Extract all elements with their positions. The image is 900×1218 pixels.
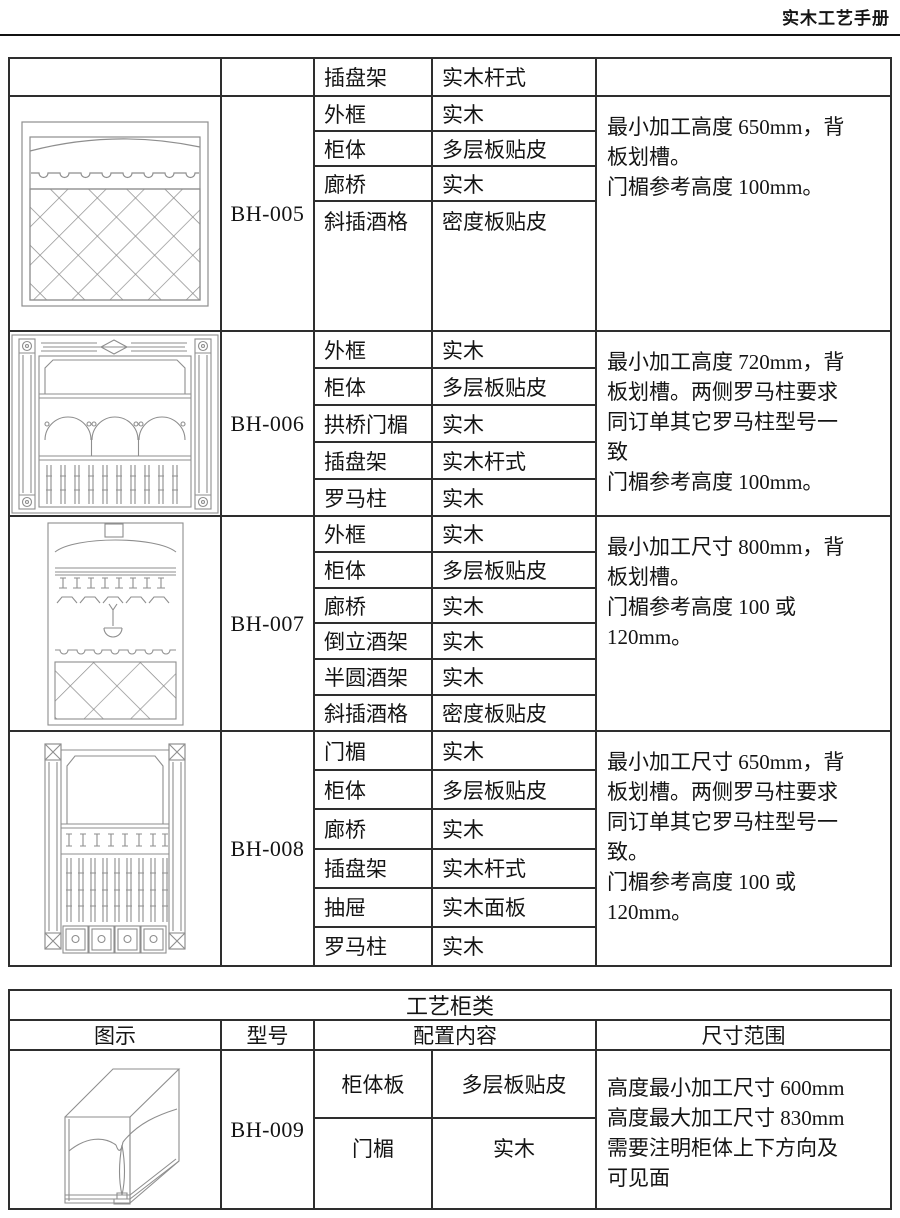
size-note-cell: 最小加工高度 720mm，背 板划槽。两侧罗马柱要求 同订单其它罗马柱型号一 致…	[597, 332, 890, 515]
config-part-cell: 外框	[315, 97, 433, 130]
config-row: 插盘架 实木杆式	[315, 59, 595, 95]
config-row: 拱桥门楣 实木	[315, 406, 595, 443]
model-cell: BH-009	[222, 1051, 315, 1208]
config-row: 抽屉 实木面板	[315, 889, 595, 928]
product-row-bh-006: BH-006 外框 实木 柜体 多层板贴皮 拱桥门楣 实木 插盘架 实木杆式	[10, 332, 890, 517]
config-part-cell: 廊桥	[315, 589, 433, 623]
diagram-cell	[10, 332, 222, 515]
column-header-config: 配置内容	[315, 1021, 597, 1049]
config-material-cell: 实木	[433, 624, 595, 658]
config-material-cell: 多层板贴皮	[433, 1051, 595, 1117]
config-material-cell: 多层板贴皮	[433, 553, 595, 587]
column-header-size-range: 尺寸范围	[597, 1021, 890, 1049]
manual-page: 实木工艺手册 插盘架 实木杆式	[0, 0, 900, 1218]
config-row: 外框 实木	[315, 517, 595, 553]
config-part-cell: 插盘架	[315, 59, 433, 95]
size-note-cell: 最小加工尺寸 800mm，背 板划槽。 门楣参考高度 100 或 120mm。	[597, 517, 890, 730]
model-cell: BH-007	[222, 517, 315, 730]
config-part-cell: 罗马柱	[315, 928, 433, 965]
config-row: 廊桥 实木	[315, 589, 595, 625]
config-part-cell: 外框	[315, 332, 433, 367]
config-material-cell: 实木	[433, 928, 595, 965]
size-note-cell: 高度最小加工尺寸 600mm 高度最大加工尺寸 830mm 需要注明柜体上下方向…	[597, 1051, 890, 1208]
config-part-cell: 插盘架	[315, 443, 433, 478]
model-cell-empty	[222, 59, 315, 95]
config-row: 门楣 实木	[315, 1119, 595, 1208]
config-material-cell: 多层板贴皮	[433, 132, 595, 165]
product-row-bh-007: BH-007 外框 实木 柜体 多层板贴皮 廊桥 实木 倒立酒架 实木	[10, 517, 890, 732]
diagram-cell	[10, 732, 222, 965]
bh-008-line-drawing-icon	[39, 736, 191, 961]
config-row: 柜体 多层板贴皮	[315, 369, 595, 406]
config-material-cell: 实木杆式	[433, 850, 595, 887]
config-part-cell: 外框	[315, 517, 433, 551]
config-part-cell: 半圆酒架	[315, 660, 433, 694]
config-row: 柜体 多层板贴皮	[315, 771, 595, 810]
config-column: 外框 实木 柜体 多层板贴皮 拱桥门楣 实木 插盘架 实木杆式 罗马柱 实木	[315, 332, 597, 515]
config-part-cell: 柜体板	[315, 1051, 433, 1117]
size-note-cell: 最小加工尺寸 650mm，背 板划槽。两侧罗马柱要求 同订单其它罗马柱型号一 致…	[597, 732, 890, 965]
diagram-cell	[10, 1051, 222, 1208]
config-material-cell: 实木	[433, 1119, 595, 1208]
config-row: 半圆酒架 实木	[315, 660, 595, 696]
bh-007-line-drawing-icon	[47, 522, 184, 726]
config-row: 罗马柱 实木	[315, 480, 595, 515]
config-row: 门楣 实木	[315, 732, 595, 771]
config-row: 外框 实木	[315, 97, 595, 132]
config-part-cell: 柜体	[315, 771, 433, 808]
config-row: 斜插酒格 密度板贴皮	[315, 696, 595, 730]
config-row: 斜插酒格 密度板贴皮	[315, 202, 595, 330]
config-column: 外框 实木 柜体 多层板贴皮 廊桥 实木 倒立酒架 实木 半圆酒架 实木	[315, 517, 597, 730]
column-header-diagram: 图示	[10, 1021, 222, 1049]
craft-table-header-row: 图示 型号 配置内容 尺寸范围	[10, 1021, 890, 1051]
table-row-carryover: 插盘架 实木杆式	[10, 59, 890, 97]
config-row: 柜体板 多层板贴皮	[315, 1051, 595, 1119]
config-row: 插盘架 实木杆式	[315, 850, 595, 889]
size-note-cell: 最小加工高度 650mm，背 板划槽。 门楣参考高度 100mm。	[597, 97, 890, 330]
config-column: 门楣 实木 柜体 多层板贴皮 廊桥 实木 插盘架 实木杆式 抽屉 实木面板	[315, 732, 597, 965]
config-material-cell: 实木	[433, 810, 595, 847]
craft-table: 工艺柜类 图示 型号 配置内容 尺寸范围	[8, 989, 892, 1210]
config-part-cell: 罗马柱	[315, 480, 433, 515]
config-part-cell: 门楣	[315, 732, 433, 769]
product-row-bh-009: BH-009 柜体板 多层板贴皮 门楣 实木 高度最小加工尺寸 600mm 高度…	[10, 1051, 890, 1208]
config-part-cell: 斜插酒格	[315, 696, 433, 730]
config-material-cell: 实木	[433, 660, 595, 694]
model-cell: BH-005	[222, 97, 315, 330]
model-cell: BH-006	[222, 332, 315, 515]
bh-006-line-drawing-icon	[11, 334, 219, 514]
config-row: 柜体 多层板贴皮	[315, 553, 595, 589]
config-part-cell: 斜插酒格	[315, 202, 433, 330]
config-row: 罗马柱 实木	[315, 928, 595, 965]
config-material-cell: 实木	[433, 97, 595, 130]
config-row: 柜体 多层板贴皮	[315, 132, 595, 167]
config-material-cell: 实木	[433, 167, 595, 200]
config-material-cell: 实木	[433, 589, 595, 623]
config-material-cell: 实木	[433, 732, 595, 769]
config-material-cell: 密度板贴皮	[433, 696, 595, 730]
config-part-cell: 柜体	[315, 553, 433, 587]
config-material-cell: 多层板贴皮	[433, 369, 595, 404]
config-material-cell: 实木	[433, 332, 595, 367]
config-part-cell: 柜体	[315, 369, 433, 404]
main-table: 插盘架 实木杆式	[8, 57, 892, 967]
config-row: 廊桥 实木	[315, 810, 595, 849]
product-row-bh-008: BH-008 门楣 实木 柜体 多层板贴皮 廊桥 实木 插盘架 实木杆式	[10, 732, 890, 965]
config-material-cell: 实木	[433, 406, 595, 441]
craft-table-title: 工艺柜类	[10, 991, 890, 1021]
config-part-cell: 柜体	[315, 132, 433, 165]
diagram-cell	[10, 517, 222, 730]
bh-005-line-drawing-icon	[21, 121, 209, 307]
note-cell-empty	[597, 59, 890, 95]
config-part-cell: 插盘架	[315, 850, 433, 887]
product-row-bh-005: BH-005 外框 实木 柜体 多层板贴皮 廊桥 实木 斜插酒格 密度板贴皮	[10, 97, 890, 332]
config-part-cell: 拱桥门楣	[315, 406, 433, 441]
config-part-cell: 门楣	[315, 1119, 433, 1208]
config-row: 外框 实木	[315, 332, 595, 369]
column-header-model: 型号	[222, 1021, 315, 1049]
page-header: 实木工艺手册	[0, 0, 900, 36]
config-material-cell: 实木	[433, 480, 595, 515]
config-material-cell: 实木杆式	[433, 59, 595, 95]
config-part-cell: 抽屉	[315, 889, 433, 926]
config-part-cell: 廊桥	[315, 167, 433, 200]
diagram-cell	[10, 97, 222, 330]
config-material-cell: 密度板贴皮	[433, 202, 595, 330]
diagram-cell-empty	[10, 59, 222, 95]
config-column: 外框 实木 柜体 多层板贴皮 廊桥 实木 斜插酒格 密度板贴皮	[315, 97, 597, 330]
config-material-cell: 多层板贴皮	[433, 771, 595, 808]
config-part-cell: 廊桥	[315, 810, 433, 847]
config-material-cell: 实木杆式	[433, 443, 595, 478]
config-row: 廊桥 实木	[315, 167, 595, 202]
page-title: 实木工艺手册	[782, 4, 890, 29]
config-row: 倒立酒架 实木	[315, 624, 595, 660]
model-cell: BH-008	[222, 732, 315, 965]
config-column: 柜体板 多层板贴皮 门楣 实木	[315, 1051, 597, 1208]
config-material-cell: 实木面板	[433, 889, 595, 926]
config-row: 插盘架 实木杆式	[315, 443, 595, 480]
config-part-cell: 倒立酒架	[315, 624, 433, 658]
config-material-cell: 实木	[433, 517, 595, 551]
config-column: 插盘架 实木杆式	[315, 59, 597, 95]
bh-009-line-drawing-icon	[10, 1055, 220, 1205]
